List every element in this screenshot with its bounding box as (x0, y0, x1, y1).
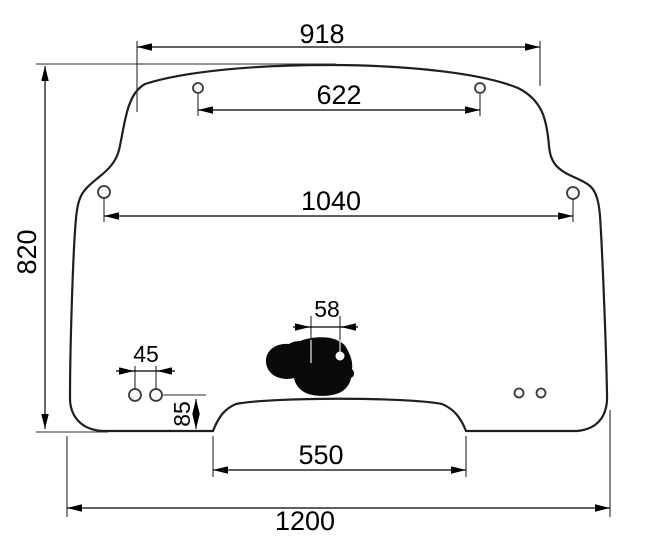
dim-label-notch-width: 550 (298, 440, 343, 470)
dim-label-top-width: 918 (299, 19, 344, 49)
mounting-hole-lower-right-2 (537, 389, 546, 398)
mounting-hole-mid-left (98, 186, 110, 198)
dim-label-small-hole-span: 45 (133, 341, 159, 367)
dim-label-hole-edge-offset: 85 (169, 401, 195, 427)
mounting-hole-mid-right (567, 187, 579, 199)
wiper-motor-cutout (266, 337, 354, 396)
mounting-hole-lower-left-2 (150, 389, 162, 401)
dim-label-overall-height: 820 (12, 229, 42, 274)
drawing-canvas: 918 622 1040 820 58 45 85 (0, 0, 665, 537)
mounting-hole-lower-right-1 (515, 389, 524, 398)
dim-label-mid-hole-span: 1040 (301, 186, 361, 216)
glass-technical-drawing: 918 622 1040 820 58 45 85 (0, 0, 665, 537)
dim-label-overall-width: 1200 (275, 506, 335, 536)
mounting-hole-top-left (193, 83, 203, 93)
mounting-hole-lower-left-1 (129, 389, 141, 401)
wiper-spindle-hole (336, 352, 345, 361)
mounting-hole-top-right (475, 83, 485, 93)
dim-label-wiper-hole-span: 58 (314, 296, 340, 322)
dim-label-upper-hole-span: 622 (316, 80, 361, 110)
